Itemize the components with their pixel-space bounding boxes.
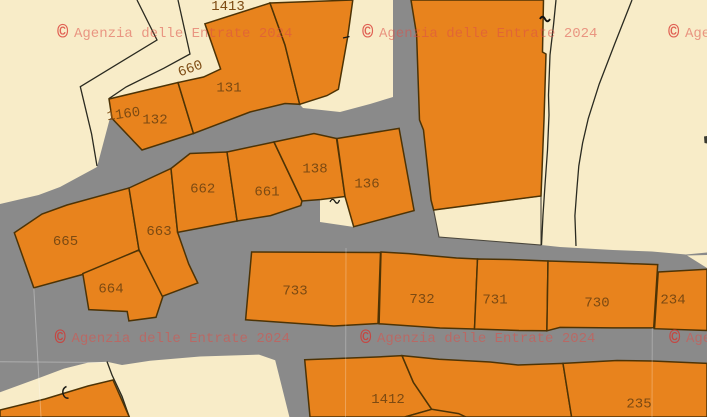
svg-text:663: 663 bbox=[146, 224, 171, 240]
svg-text:©: © bbox=[55, 327, 67, 349]
svg-text:131: 131 bbox=[216, 81, 241, 97]
svg-text:1412: 1412 bbox=[371, 392, 405, 408]
svg-text:Agenzia delle Entrate 2024: Agenzia delle Entrate 2024 bbox=[72, 331, 290, 347]
svg-text:730: 730 bbox=[584, 296, 609, 312]
svg-text:661: 661 bbox=[254, 185, 279, 201]
svg-text:664: 664 bbox=[98, 282, 123, 298]
svg-text:©: © bbox=[57, 22, 69, 44]
svg-text:136: 136 bbox=[354, 177, 379, 193]
svg-text:©: © bbox=[668, 22, 680, 44]
svg-text:234: 234 bbox=[660, 293, 685, 309]
svg-text:©: © bbox=[360, 327, 372, 349]
svg-text:Agenzia delle Entrate 2024: Agenzia delle Entrate 2024 bbox=[686, 331, 707, 347]
svg-text:Agenzia delle Entrate 2024: Agenzia delle Entrate 2024 bbox=[379, 26, 597, 42]
svg-text:733: 733 bbox=[282, 284, 307, 300]
svg-text:Agenzia delle Entrate 2024: Agenzia delle Entrate 2024 bbox=[74, 26, 292, 42]
svg-text:1413: 1413 bbox=[211, 0, 245, 15]
svg-text:132: 132 bbox=[142, 113, 167, 129]
svg-text:732: 732 bbox=[409, 292, 434, 308]
svg-text:665: 665 bbox=[53, 234, 78, 250]
svg-text:©: © bbox=[669, 327, 681, 349]
svg-text:©: © bbox=[362, 22, 374, 44]
svg-text:Agenzia delle Entrate 2024: Agenzia delle Entrate 2024 bbox=[377, 331, 595, 347]
svg-text:235: 235 bbox=[626, 397, 651, 413]
svg-text:662: 662 bbox=[190, 182, 215, 198]
svg-text:138: 138 bbox=[302, 162, 327, 178]
svg-text:Agenzia delle Entrate 2024: Agenzia delle Entrate 2024 bbox=[685, 26, 707, 42]
svg-text:731: 731 bbox=[482, 293, 507, 309]
